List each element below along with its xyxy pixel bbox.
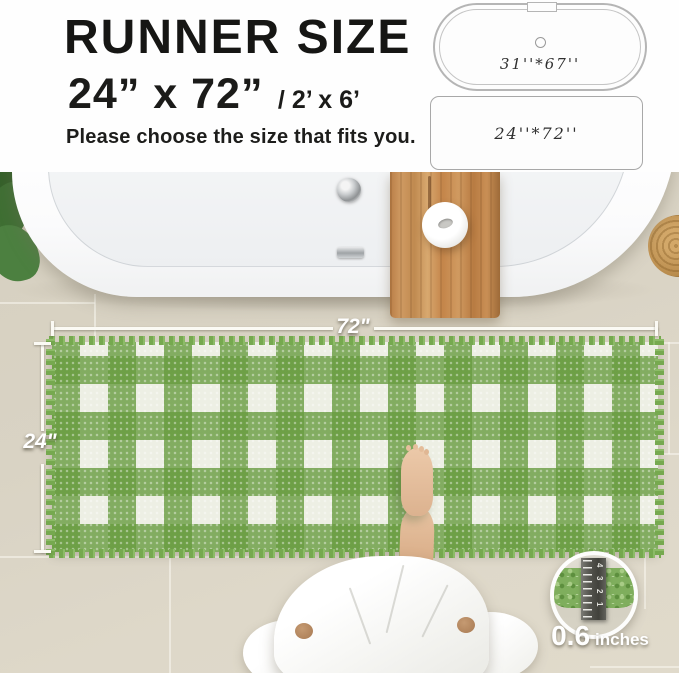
pile-height-caption: 0.6inches <box>545 620 655 652</box>
ruler-number: 1 <box>594 602 604 612</box>
size-primary: 24” x 72” <box>68 70 263 118</box>
robe-fold <box>349 587 371 644</box>
wooden-bath-tray <box>390 172 500 318</box>
page-title: RUNNER SIZE <box>64 10 411 65</box>
bathtub <box>12 172 676 297</box>
width-dimension-line <box>374 327 658 330</box>
height-dimension-line <box>41 343 44 431</box>
size-secondary: / 2’ x 6’ <box>278 86 360 114</box>
size-subtitle: Please choose the size that fits you. <box>66 126 416 149</box>
tile-grout-line <box>590 666 679 668</box>
tile-grout-line <box>668 342 670 454</box>
product-image: RUNNER SIZE 24” x 72” / 2’ x 6’ Please c… <box>0 0 679 673</box>
width-dimension-line <box>52 327 333 330</box>
person-in-bathrobe <box>247 554 515 673</box>
person-hand <box>295 623 313 639</box>
pile-height-value: 0.6 <box>551 620 590 651</box>
height-dimension-tick <box>34 342 51 345</box>
bathroom-photo: 72" 24" 4 3 2 <box>0 172 679 673</box>
toilet-paper-roll <box>422 202 468 248</box>
width-dimension-tick <box>51 321 54 336</box>
checkered-runner-rug <box>52 342 658 552</box>
bathtub-drain-icon <box>535 37 546 48</box>
rug-fringe <box>655 339 664 555</box>
size-line: 24” x 72” / 2’ x 6’ <box>68 70 360 119</box>
bathtub-size-diagram: 31''*67'' <box>433 3 647 91</box>
paper-roll-core <box>437 217 454 230</box>
ruler-icon: 4 3 2 1 <box>581 558 606 620</box>
runner-diagram-label: 24''*72'' <box>431 124 642 143</box>
runner-size-diagram: 24''*72'' <box>430 96 643 170</box>
height-dimension-tick <box>34 550 51 553</box>
person-foot <box>401 448 433 516</box>
wicker-basket <box>648 215 679 277</box>
overflow-plate-icon <box>337 247 364 258</box>
ruler-number: 4 <box>594 563 604 573</box>
tile-grout-line <box>169 553 171 673</box>
pile-height-unit: inches <box>595 630 649 649</box>
height-dimension-line <box>41 464 44 552</box>
robe-fold <box>421 584 448 637</box>
ruler-number: 2 <box>594 589 604 599</box>
bathtub-diagram-label: 31''*67'' <box>435 55 645 73</box>
robe-fold <box>386 565 405 633</box>
bathtub-faucet-notch <box>527 2 557 12</box>
width-dimension-tick <box>655 321 658 336</box>
height-dimension-label: 24" <box>14 430 66 454</box>
robe-body <box>274 556 489 673</box>
width-dimension-label: 72" <box>330 315 376 339</box>
header-section: RUNNER SIZE 24” x 72” / 2’ x 6’ Please c… <box>0 0 679 172</box>
ruler-number: 3 <box>594 576 604 586</box>
tile-grout-line <box>644 553 646 609</box>
drain-knob-icon <box>337 178 361 202</box>
person-hand <box>457 617 475 633</box>
